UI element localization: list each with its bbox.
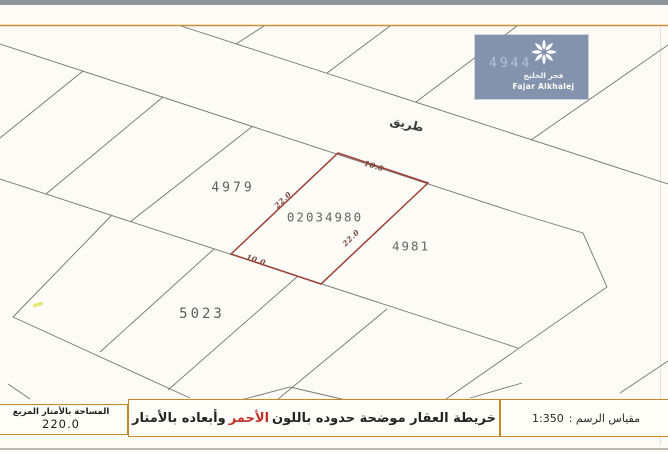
area-box: المساحة بالأمتار المربع 220.0	[0, 404, 128, 435]
starburst-flower-icon	[529, 37, 559, 67]
divider-line	[277, 309, 387, 400]
area-value: 220.0	[0, 417, 127, 431]
divider-line	[13, 215, 112, 317]
scale-label: مقياس الرسم :	[569, 412, 640, 425]
boundary-right	[446, 213, 607, 399]
parcel-label-5023: 5023	[179, 306, 225, 322]
scale-value: 1:350	[532, 412, 564, 425]
parcel-label-4979: 4979	[211, 181, 254, 196]
note-suffix: وأبعاده بالأمتار	[132, 411, 226, 426]
cadastral-plan-sheet: طريق 4979 02034980 4981 5023 10.0 22.0 2…	[0, 0, 668, 452]
sheet-bottom-edge	[0, 448, 668, 450]
divider-line	[0, 71, 83, 138]
logo-name-arabic: فجر الخليج	[503, 71, 584, 80]
divider-line	[168, 276, 298, 390]
divider-line	[130, 126, 253, 222]
legend-note-box: خريطة العقار موضحة حدوده باللون الأحمر و…	[128, 399, 500, 437]
parcel-label-4981: 4981	[392, 239, 430, 254]
divider-line	[236, 26, 264, 44]
scale-box: مقياس الرسم : 1:350	[500, 399, 668, 437]
logo-name-english: Fajar Alkhalej	[503, 82, 584, 91]
area-label: المساحة بالأمتار المربع	[0, 407, 127, 417]
note-red-word: الأحمر	[226, 411, 272, 426]
note-prefix: خريطة العقار موضحة حدوده باللون	[272, 411, 496, 426]
road-upper-edge	[181, 26, 668, 184]
line-fragment	[470, 383, 522, 398]
logo-plot-number: 4944	[489, 56, 532, 71]
parcel-label-subject: 02034980	[287, 210, 363, 225]
surveyor-logo-stamp: 4944 فجر الخليج Fajar Alkhalej	[475, 35, 588, 99]
road-lower-edge	[0, 44, 517, 213]
line-fragment	[8, 384, 30, 399]
divider-line	[327, 26, 390, 73]
boundary-lower-left	[13, 317, 190, 398]
divider-line	[100, 249, 214, 352]
divider-line	[46, 97, 163, 194]
